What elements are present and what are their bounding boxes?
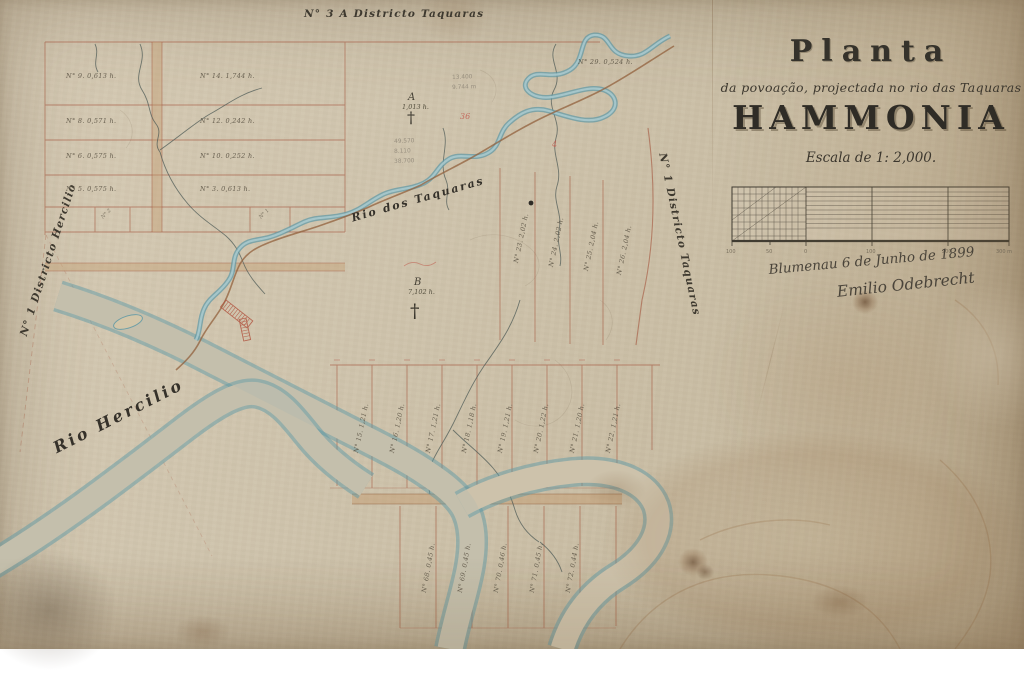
marker-b-area: 7,102 h. (408, 288, 435, 296)
red-pencil-number: 4 (552, 140, 557, 149)
lot-label: N° 10. 0,252 h. (200, 152, 255, 160)
map-title: Planta (732, 34, 1010, 69)
pencil-note: 13.400 (452, 73, 473, 82)
lot-label: N° 12. 0,242 h. (200, 117, 255, 125)
lot-label: N° 3. 0,613 h. (200, 185, 250, 193)
red-pencil-number: 36 (460, 112, 470, 121)
pencil-note: 49.570 (394, 137, 415, 146)
settlement-name: HAMMONIA (732, 98, 1010, 137)
pencil-note: 8.110 (394, 147, 411, 156)
lot-label: N° 14. 1,744 h. (200, 72, 255, 80)
scale-label: Escala de 1: 2,000. (732, 150, 1010, 166)
scale-tick-label: 100 (726, 249, 736, 255)
lot-label: N° 8. 0,571 h. (66, 117, 116, 125)
historic-map-sheet: N° 3 A Districto Taquaras N° 1 Districto… (0, 0, 1024, 649)
pencil-note: 38.700 (394, 157, 415, 166)
scale-tick-label: 300 m (996, 249, 1012, 255)
lot-label: N° 9. 0,613 h. (66, 72, 116, 80)
church-cross-a: † (407, 108, 415, 127)
scale-tick-label: 0 (804, 249, 807, 255)
map-subtitle: da povoação, projectada no rio das Taqua… (700, 80, 1024, 95)
scale-tick-label: 50 (766, 249, 772, 255)
marker-a-letter: A (408, 92, 415, 103)
lot-label: N° 29. 0,524 h. (578, 58, 633, 66)
church-cross-b: † (410, 300, 420, 322)
pencil-note: 9.744 m (452, 83, 476, 92)
marker-b-letter: B (414, 277, 421, 288)
lot-label: N° 6. 0,575 h. (66, 152, 116, 160)
district-label-top: N° 3 A Districto Taquaras (304, 8, 484, 20)
lot-label: N° 5. 0,575 h. (66, 185, 116, 193)
